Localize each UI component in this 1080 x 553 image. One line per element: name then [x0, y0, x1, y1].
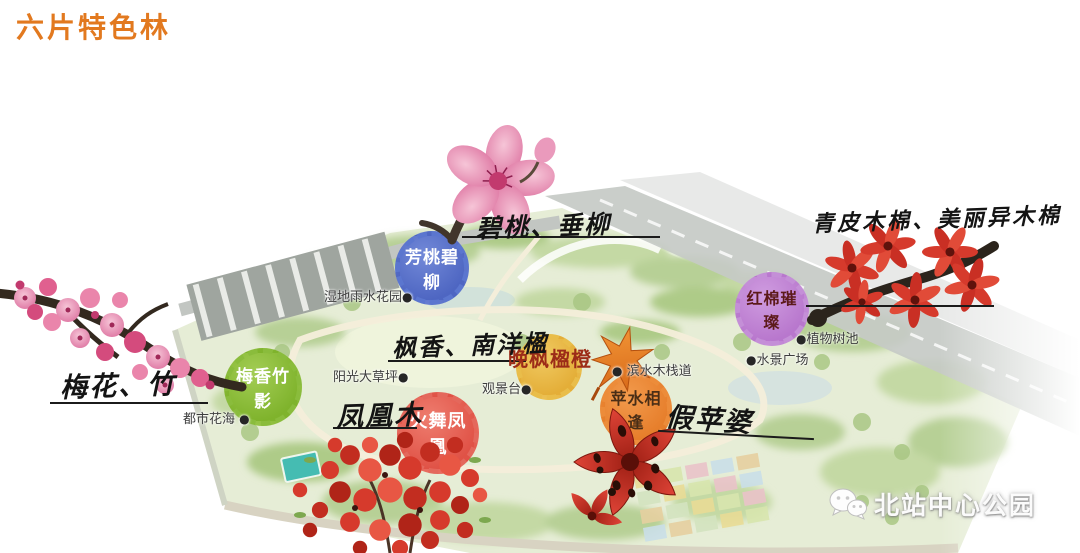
watermark-text: 北站中心公园: [874, 486, 1036, 522]
location-dot: ●: [239, 412, 249, 426]
location-dot: ●: [796, 332, 806, 346]
map-label-text: 湿地雨水花园: [324, 290, 402, 305]
location-dot: ●: [612, 364, 622, 378]
species-label-fenghuangmu: 凤凰木: [335, 392, 423, 434]
infographic-canvas: 六片特色林 芳桃碧柳 梅香竹影 火舞凤凰 苹水相逢 红棉璀璨 晚枫楹橙: [0, 0, 1080, 553]
map-label-text: 滨水木栈道: [627, 364, 692, 379]
photo-overlay: [0, 0, 1080, 553]
map-label-water-plaza: ●水景广场: [746, 349, 809, 368]
species-label-bitao-chuiliu: 碧桃、垂柳: [475, 205, 611, 246]
map-label-text: 水景广场: [756, 353, 808, 368]
map-label-wetland-rain-garden: 湿地雨水花园●: [324, 286, 413, 305]
page-title: 六片特色林: [16, 6, 171, 46]
location-dot: ●: [402, 290, 412, 304]
location-dot: ●: [746, 353, 756, 367]
location-dot: ●: [398, 370, 408, 384]
species-label-fengxiang-nanyangying: 枫香、南洋楹: [391, 323, 548, 363]
species-label-jiapingpo: 假苹婆: [665, 395, 755, 440]
map-label-text: 都市花海: [183, 412, 235, 427]
map-label-plant-pools: ●植物树池: [796, 328, 859, 347]
watermark: 北站中心公园: [828, 486, 1036, 522]
species-label-meihua-zhu: 梅花、竹: [59, 362, 176, 405]
leader-line-hongmian: [806, 305, 994, 307]
location-dot: ●: [521, 382, 531, 396]
flame-tree-flowers-photo: [293, 432, 491, 553]
map-label-text: 观景台: [482, 382, 521, 397]
map-label-waterfront-boardwalk: ● 滨水木栈道: [612, 360, 692, 379]
map-label-text: 阳光大草坪: [333, 370, 398, 385]
map-label-text: 植物树池: [806, 332, 858, 347]
map-label-viewing-deck: 观景台●: [482, 378, 532, 397]
wechat-icon: [828, 487, 868, 521]
map-label-sunny-lawn: 阳光大草坪●: [333, 366, 409, 385]
map-label-urban-flower-sea: 都市花海 ●: [183, 408, 250, 427]
